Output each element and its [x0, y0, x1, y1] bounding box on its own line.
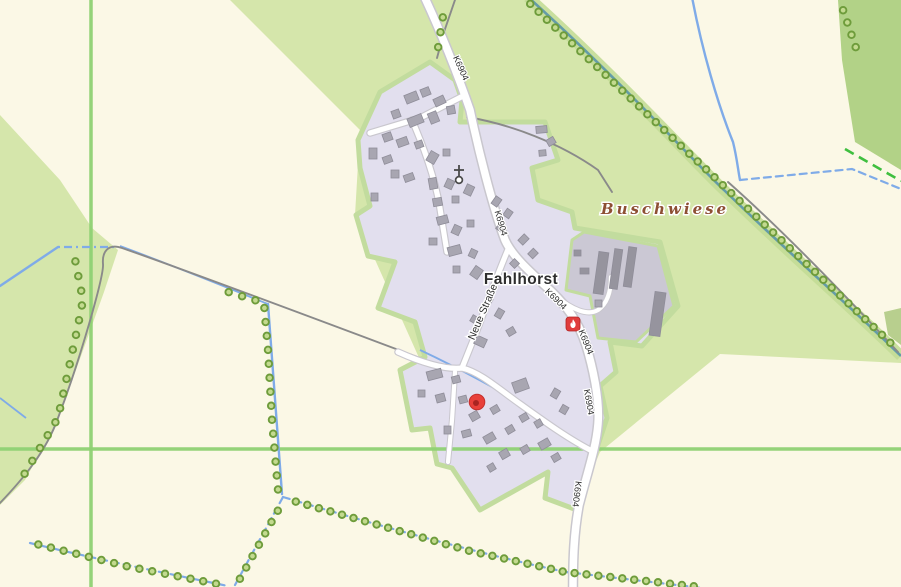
tree-icon — [560, 32, 567, 39]
tree-icon — [274, 472, 281, 479]
tree-icon — [862, 316, 869, 323]
tree-icon — [770, 229, 777, 236]
tree-icon — [611, 79, 618, 86]
tree-icon — [720, 182, 727, 189]
tree-icon — [66, 361, 73, 368]
tree-icon — [267, 389, 274, 396]
building — [391, 170, 399, 178]
tree-icon — [736, 198, 743, 205]
tree-icon — [443, 541, 450, 548]
tree-icon — [571, 570, 578, 577]
tree-icon — [35, 541, 42, 548]
tree-icon — [728, 190, 735, 197]
tree-icon — [711, 174, 718, 181]
tree-icon — [252, 297, 259, 304]
tree-icon — [577, 48, 584, 55]
tree-icon — [275, 486, 282, 493]
tree-icon — [653, 119, 660, 126]
tree-icon — [524, 560, 531, 567]
tree-icon — [256, 542, 263, 549]
tree-icon — [268, 403, 275, 410]
tree-icon — [854, 308, 861, 315]
tree-icon — [29, 458, 36, 465]
tree-icon — [373, 521, 380, 528]
tree-icon — [435, 44, 442, 51]
tree-icon — [501, 555, 508, 562]
tree-icon — [840, 7, 847, 14]
tree-icon — [795, 253, 802, 260]
tree-icon — [879, 332, 886, 339]
tree-icon — [270, 430, 277, 437]
tree-icon — [72, 258, 79, 265]
tree-icon — [583, 571, 590, 578]
tree-icon — [636, 103, 643, 110]
tree-icon — [264, 333, 271, 340]
tree-icon — [362, 518, 369, 525]
tree-icon — [812, 269, 819, 276]
tree-icon — [44, 432, 51, 439]
building — [371, 193, 378, 201]
tree-icon — [271, 444, 278, 451]
tree-icon — [408, 531, 415, 538]
tree-icon — [691, 583, 698, 587]
tree-icon — [243, 564, 250, 571]
tree-icon — [327, 508, 334, 515]
tree-icon — [316, 505, 323, 512]
tree-icon — [761, 221, 768, 228]
tree-icon — [548, 566, 555, 573]
tree-icon — [619, 87, 626, 94]
tree-icon — [262, 319, 269, 326]
tree-icon — [559, 568, 566, 575]
tree-icon — [70, 346, 77, 353]
tree-icon — [607, 574, 614, 581]
tree-icon — [602, 72, 609, 79]
building — [432, 197, 442, 206]
tree-icon — [535, 9, 542, 16]
building — [595, 300, 602, 307]
tree-icon — [669, 135, 676, 142]
building — [467, 220, 474, 227]
tree-icon — [820, 277, 827, 284]
tree-icon — [643, 578, 650, 585]
tree-icon — [57, 405, 64, 412]
tree-icon — [703, 166, 710, 173]
tree-icon — [266, 375, 273, 382]
locality-label-buschwiese: Buschwiese — [600, 200, 729, 218]
tree-icon — [694, 158, 701, 165]
tree-icon — [848, 32, 855, 39]
building — [536, 126, 548, 134]
tree-icon — [339, 511, 346, 518]
building — [444, 426, 451, 434]
tree-icon — [527, 1, 534, 8]
tree-icon — [586, 56, 593, 63]
tree-icon — [111, 560, 118, 567]
map-canvas[interactable]: Fahlhorst Buschwiese Neue Straße K6904 K… — [0, 0, 901, 587]
tree-icon — [631, 576, 638, 583]
tree-icon — [431, 538, 438, 545]
tree-icon — [552, 24, 559, 31]
tree-icon — [828, 284, 835, 291]
tree-icon — [60, 390, 67, 397]
tree-icon — [293, 498, 300, 505]
tree-icon — [304, 502, 311, 509]
tree-icon — [239, 293, 246, 300]
tree-icon — [187, 575, 194, 582]
building — [446, 105, 455, 114]
tree-icon — [268, 519, 275, 526]
tree-icon — [420, 534, 427, 541]
building — [429, 238, 437, 245]
tree-icon — [78, 288, 85, 295]
tree-icon — [200, 578, 207, 585]
tree-icon — [466, 547, 473, 554]
tree-icon — [162, 571, 169, 578]
building — [428, 177, 438, 189]
tree-icon — [753, 213, 760, 220]
building — [369, 148, 377, 159]
tree-icon — [52, 419, 59, 426]
tree-icon — [60, 547, 67, 554]
tree-icon — [269, 417, 276, 424]
tree-icon — [569, 40, 576, 47]
tree-icon — [655, 579, 662, 586]
building — [539, 150, 546, 157]
tree-icon — [454, 544, 461, 551]
poi-dot-marker[interactable] — [469, 394, 485, 410]
tree-icon — [225, 289, 232, 296]
tree-icon — [787, 245, 794, 252]
tree-icon — [174, 573, 181, 580]
barn-building — [574, 250, 581, 256]
building — [452, 196, 459, 203]
building — [418, 390, 425, 397]
tree-icon — [396, 528, 403, 535]
fire-station-icon[interactable] — [566, 317, 580, 331]
tree-icon — [595, 572, 602, 579]
tree-icon — [76, 317, 83, 324]
tree-icon — [678, 143, 685, 150]
building — [443, 149, 450, 156]
tree-icon — [619, 575, 626, 582]
tree-icon — [123, 563, 130, 570]
tree-icon — [437, 29, 444, 36]
building — [458, 395, 468, 404]
tree-icon — [350, 515, 357, 522]
tree-icon — [385, 525, 392, 532]
tree-icon — [887, 340, 894, 347]
tree-icon — [275, 507, 282, 514]
tree-icon — [79, 302, 86, 309]
tree-icon — [37, 445, 44, 452]
tree-icon — [63, 376, 70, 383]
tree-icon — [536, 563, 543, 570]
tree-icon — [237, 576, 244, 583]
tree-icon — [852, 44, 859, 51]
tree-icon — [136, 566, 143, 573]
tree-icon — [73, 332, 80, 339]
tree-icon — [272, 458, 279, 465]
tree-icon — [21, 470, 28, 477]
tree-icon — [48, 544, 55, 551]
tree-icon — [803, 261, 810, 268]
tree-icon — [661, 127, 668, 134]
tree-icon — [679, 582, 686, 587]
tree-icon — [73, 551, 80, 558]
building — [453, 266, 460, 273]
tree-icon — [644, 111, 651, 118]
tree-icon — [213, 580, 220, 587]
tree-icon — [262, 530, 269, 537]
tree-icon — [544, 16, 551, 23]
barn-building — [580, 268, 589, 274]
tree-icon — [98, 557, 105, 564]
tree-icon — [686, 150, 693, 157]
tree-icon — [627, 95, 634, 102]
tree-icon — [594, 64, 601, 71]
tree-icon — [845, 300, 852, 307]
tree-icon — [778, 237, 785, 244]
tree-icon — [86, 554, 93, 561]
tree-icon — [261, 305, 268, 312]
tree-icon — [667, 580, 674, 587]
tree-icon — [75, 273, 82, 280]
tree-icon — [844, 19, 851, 26]
map-viewport[interactable]: Fahlhorst Buschwiese Neue Straße K6904 K… — [0, 0, 901, 587]
tree-icon — [265, 347, 272, 354]
tree-icon — [249, 553, 256, 560]
tree-icon — [489, 553, 496, 560]
tree-icon — [870, 324, 877, 331]
tree-icon — [440, 14, 447, 21]
tree-icon — [266, 361, 273, 368]
tree-icon — [513, 558, 520, 565]
tree-icon — [837, 292, 844, 299]
tree-icon — [477, 550, 484, 557]
building — [451, 375, 461, 384]
tree-icon — [149, 568, 156, 575]
building — [435, 393, 446, 403]
tree-icon — [745, 206, 752, 213]
